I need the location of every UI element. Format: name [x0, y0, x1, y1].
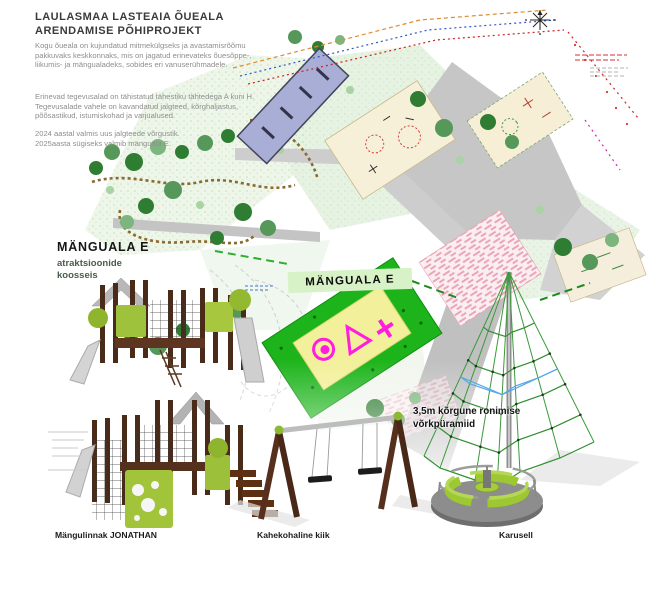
timeline-paragraph: 2024 aastal valmis uus jalgteede võrgust… [35, 129, 275, 148]
page-title-line2: ARENDAMISE PÕHIPROJEKT [35, 24, 224, 38]
timeline-line2: 2025aasta sügiseks valmib mänguala E. [35, 139, 275, 149]
poster: LAULASMAA LASTEAIA ÕUEALA ARENDAMISE PÕH… [0, 0, 650, 596]
timeline-line1: 2024 aastal valmis uus jalgteede võrgust… [35, 129, 275, 139]
site-plan [0, 0, 650, 596]
side-label-subtitle: atraktsioonide koosseis [57, 258, 122, 281]
pyramid-note-line1: 3,5m kõrgune ronimise [413, 406, 520, 419]
pyramid-note-line2: võrkpüramiid [413, 419, 520, 432]
pyramid-note: 3,5m kõrgune ronimise võrkpüramiid [413, 406, 520, 431]
page-title: LAULASMAA LASTEAIA ÕUEALA ARENDAMISE PÕH… [35, 10, 224, 38]
carousel-label: Karusell [499, 530, 533, 540]
side-label-subtitle-line1: atraktsioonide [57, 258, 122, 270]
page-title-line1: LAULASMAA LASTEAIA ÕUEALA [35, 10, 224, 24]
intro-paragraph: Kogu õueala on kujundatud mitmekülgseks … [35, 41, 275, 70]
zones-paragraph: Erinevad tegevusalad on tähistatud tähes… [35, 92, 275, 121]
side-label-subtitle-line2: koosseis [57, 270, 122, 282]
side-label-title: MÄNGUALA E [57, 240, 149, 254]
area-label: MÄNGUALA E [288, 268, 413, 293]
playhouse-label: Mängulinnak JONATHAN [55, 530, 157, 540]
swing-label: Kahekohaline kiik [257, 530, 330, 540]
